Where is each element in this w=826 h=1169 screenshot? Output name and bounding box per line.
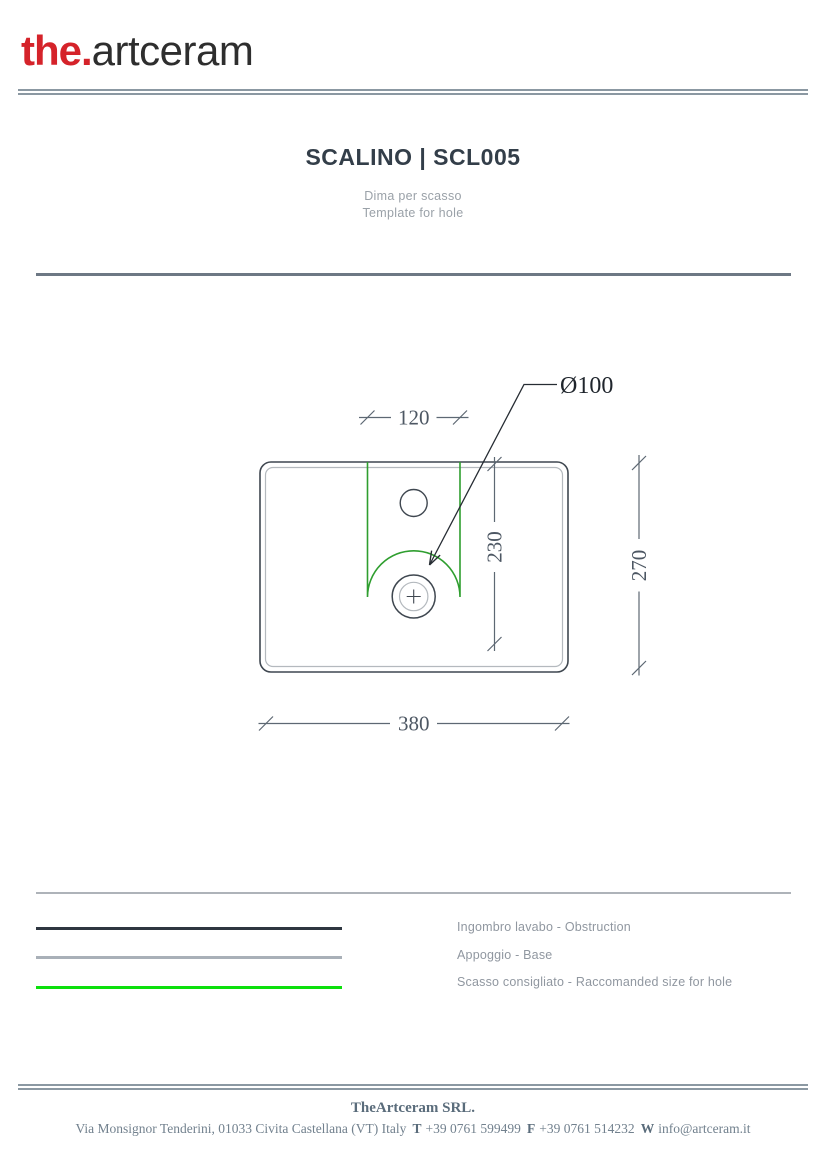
faucet-hole xyxy=(400,490,427,517)
footer-address-text: Via Monsignor Tenderini, 01033 Civita Ca… xyxy=(75,1121,406,1136)
legend-separator-rule xyxy=(36,892,791,894)
legend-swatch-obstruction xyxy=(36,927,342,930)
legend-label-obstruction: Ingombro lavabo - Obstruction xyxy=(457,920,631,934)
legend-swatch-recommended-hole xyxy=(36,986,342,989)
footer-web-label: W xyxy=(641,1121,655,1136)
drain-center-cross xyxy=(407,590,421,604)
technical-drawing: 120 230 270 380 Ø100 xyxy=(240,360,680,740)
datasheet-page: the.artceram SCALINO | SCL005 Dima per s… xyxy=(0,0,826,1169)
legend-label-base: Appoggio - Base xyxy=(457,948,552,962)
dimension-270-label: 270 xyxy=(627,550,651,582)
footer-company-name: TheArtceram SRL. xyxy=(0,1100,826,1117)
footer-double-rule xyxy=(18,1084,808,1090)
dimension-120-label: 120 xyxy=(398,406,430,430)
recommended-hole-outline xyxy=(368,462,461,597)
dimension-380-label: 380 xyxy=(398,712,430,736)
brand-logo: the.artceram xyxy=(21,28,253,74)
basin-obstruction-outline xyxy=(260,462,568,672)
page-title: SCALINO | SCL005 xyxy=(0,144,826,171)
footer-fax-label: F xyxy=(527,1121,535,1136)
footer-phone-number: +39 0761 599499 xyxy=(426,1121,521,1136)
legend-swatch-base xyxy=(36,956,342,959)
footer-contact-line: Via Monsignor Tenderini, 01033 Civita Ca… xyxy=(0,1121,826,1137)
subtitle-english: Template for hole xyxy=(0,206,826,220)
dimension-230-label: 230 xyxy=(483,531,507,563)
footer-email: info@artceram.it xyxy=(658,1121,750,1136)
logo-artceram: artceram xyxy=(92,27,254,74)
subtitle-italian: Dima per scasso xyxy=(0,189,826,203)
logo-the: the. xyxy=(21,27,92,74)
footer-fax-number: +39 0761 514232 xyxy=(539,1121,634,1136)
drain-diameter-label: Ø100 xyxy=(560,373,613,399)
title-separator-rule xyxy=(36,273,791,276)
legend-label-recommended-hole: Scasso consigliato - Raccomanded size fo… xyxy=(457,975,732,989)
basin-base-outline xyxy=(266,468,563,667)
header-double-rule xyxy=(18,89,808,95)
footer-phone-label: T xyxy=(412,1121,421,1136)
